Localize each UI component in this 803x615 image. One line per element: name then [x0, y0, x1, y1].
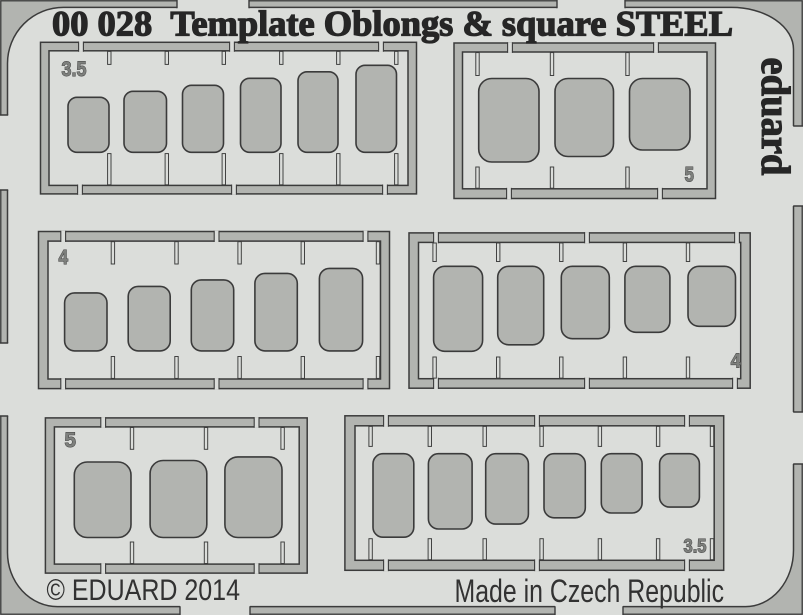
svg-text:4: 4 — [59, 247, 69, 269]
svg-text:© EDUARD 2014: © EDUARD 2014 — [47, 574, 241, 607]
svg-text:3.5: 3.5 — [684, 536, 707, 557]
svg-text:eduard: eduard — [753, 58, 799, 176]
svg-text:4: 4 — [731, 351, 742, 373]
svg-text:Made in Czech Republic: Made in Czech Republic — [455, 573, 725, 609]
svg-text:00 028 Template Oblongs & squ: 00 028 Template Oblongs & square STEEL — [52, 3, 733, 43]
svg-text:5: 5 — [685, 164, 695, 187]
svg-text:3.5: 3.5 — [62, 58, 87, 81]
svg-text:5: 5 — [65, 429, 77, 452]
